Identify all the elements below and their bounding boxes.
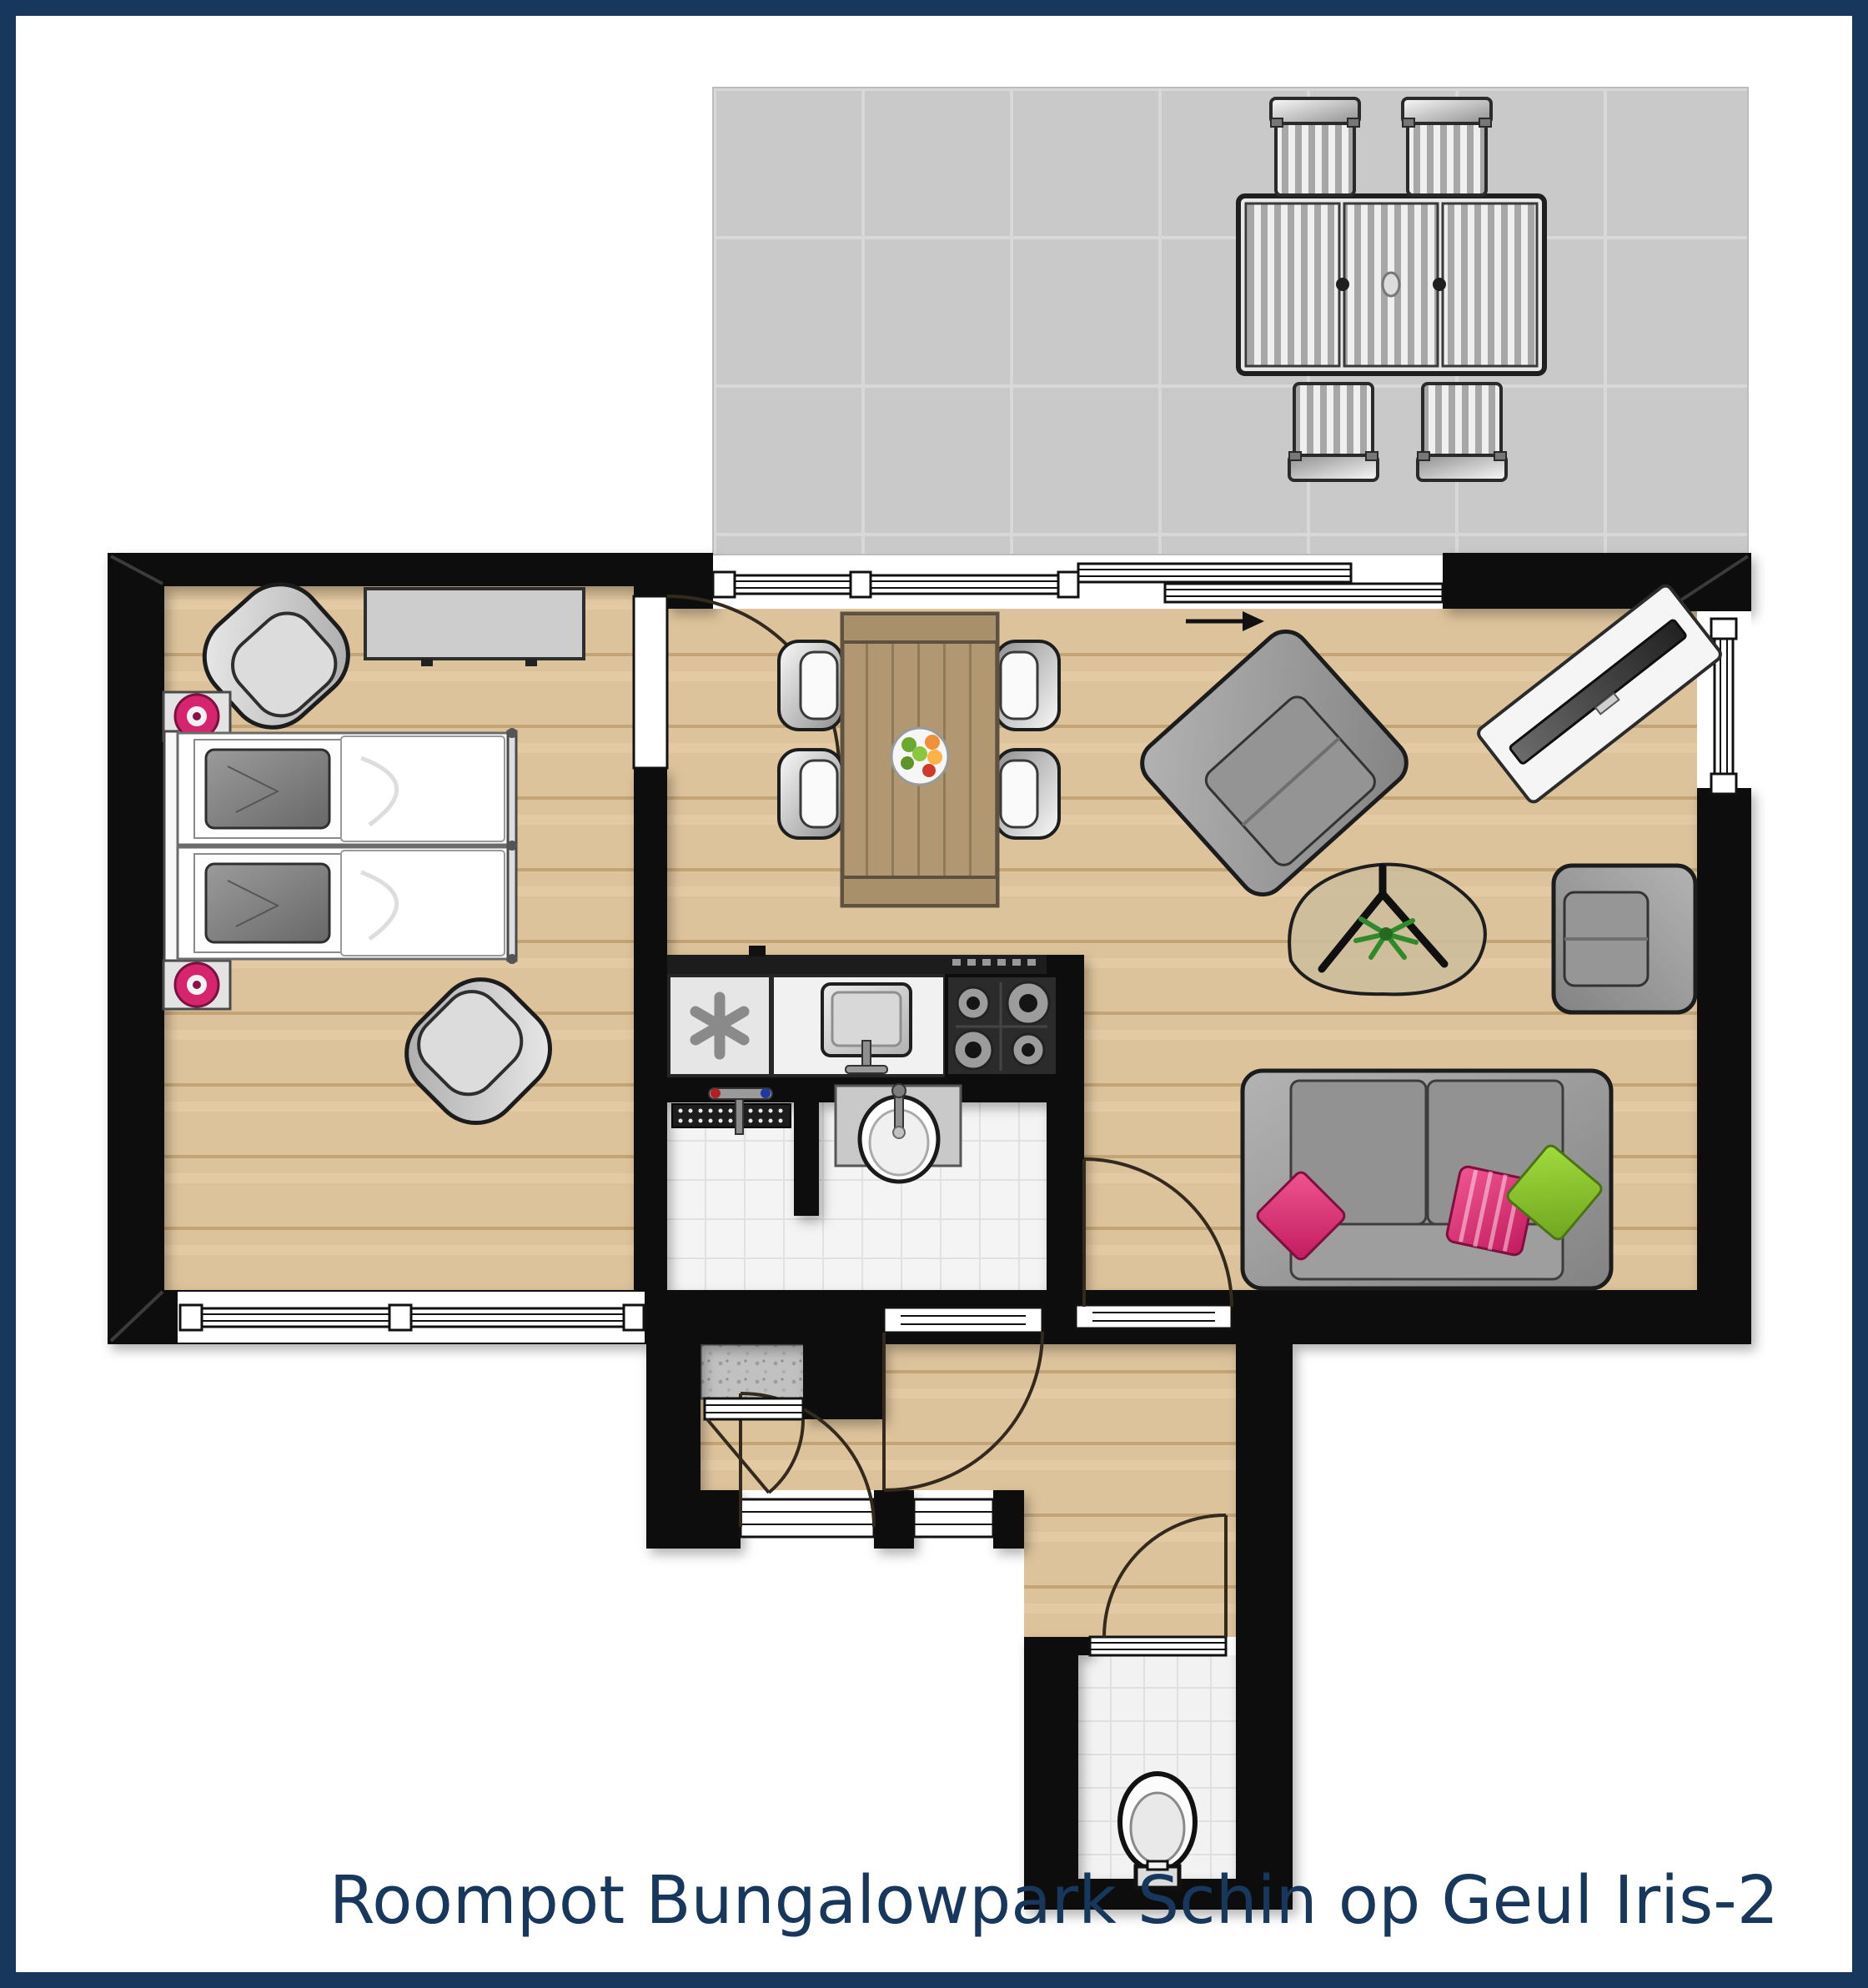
window-top-left: [713, 572, 1078, 597]
dining-chair-icon: [996, 750, 1059, 838]
headboard: [164, 731, 178, 961]
freezer: [669, 976, 771, 1076]
wall-toilet-right: [1236, 1344, 1293, 1910]
patio-chair-icon: [1418, 384, 1506, 480]
wall-shower-divider: [794, 1086, 819, 1216]
sofa: [1243, 1071, 1611, 1288]
burners: [954, 982, 1049, 1071]
dining-chair-icon: [996, 641, 1059, 730]
twin-beds: [164, 728, 517, 964]
dresser: [365, 589, 584, 659]
plan-caption: Roompot Bungalowpark Schin op Geul Iris-…: [329, 1862, 1779, 1939]
armchair-right: [1554, 866, 1695, 1012]
kitchen-sink: [772, 976, 945, 1076]
wall-hall-bottom-c: [993, 1490, 1024, 1549]
wall-hall-bottom-a: [646, 1490, 741, 1549]
shower-drain: [672, 1104, 791, 1127]
wall-bedroom-divider-top: [634, 553, 667, 596]
terrace: [713, 88, 1748, 555]
patio-table: [1238, 196, 1544, 374]
window-bedroom-bottom: [180, 1305, 644, 1330]
wall-bedroom-top: [108, 553, 667, 586]
dresser-foot: [421, 659, 433, 666]
dining-chair-icon: [779, 641, 842, 730]
bed-icon: [178, 733, 511, 845]
wall-hall-bottom-b: [874, 1490, 914, 1549]
living-doorway: [1076, 1305, 1232, 1328]
bathroom-doorway: [884, 1308, 1042, 1333]
floorplan-drawing: [16, 16, 1852, 1972]
wall-bedroom-divider: [634, 768, 667, 1344]
patio-chair-icon: [1271, 98, 1359, 195]
wall-right: [1697, 788, 1751, 1344]
wall-left: [108, 553, 164, 1343]
patio-chair-icon: [1289, 384, 1378, 480]
gas-hob: [947, 959, 1057, 1076]
bed-icon: [178, 847, 511, 959]
terrace-floor: [713, 88, 1748, 555]
dresser-foot: [525, 659, 537, 666]
wall-top-right-segment: [1443, 553, 1664, 609]
fruit-bowl: [891, 728, 948, 785]
storage-closet-mat: [700, 1344, 806, 1398]
washbasin: [836, 1084, 961, 1182]
nightstand-icon: [163, 961, 230, 1009]
patio-chair-icon: [1403, 98, 1491, 195]
dining-chair-icon: [779, 750, 842, 838]
wall-closet-right: [803, 1344, 884, 1419]
bedroom-doorway: [634, 596, 667, 768]
window-hall: [914, 1499, 993, 1537]
floorplan-page: Roompot Bungalowpark Schin op Geul Iris-…: [0, 0, 1868, 1988]
counter-tap: [749, 946, 766, 956]
